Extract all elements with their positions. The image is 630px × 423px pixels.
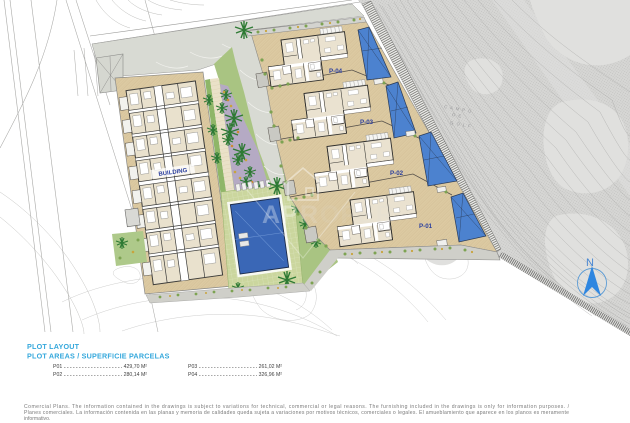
svg-text:P-02: P-02 (390, 170, 404, 177)
svg-text:P04: P04 (188, 372, 197, 378)
svg-text:P03: P03 (188, 364, 197, 370)
svg-text:PLOT AREAS / SUPERFICIE PARCEL: PLOT AREAS / SUPERFICIE PARCELAS (27, 352, 170, 361)
svg-text:P-04: P-04 (329, 68, 343, 75)
svg-text:Planes comerciales. La informa: Planes comerciales. La información conte… (24, 410, 569, 416)
svg-text:N: N (586, 257, 594, 269)
svg-text:280,14 M²: 280,14 M² (124, 372, 148, 378)
svg-text:informativo.: informativo. (24, 416, 50, 422)
svg-text:R: R (300, 201, 319, 229)
svg-text:P02: P02 (53, 372, 62, 378)
svg-text:PLOT LAYOUT: PLOT LAYOUT (27, 342, 80, 351)
svg-text:P-03: P-03 (360, 119, 374, 126)
svg-text:AP: AP (262, 201, 299, 229)
svg-text:OPER: OPER (320, 201, 395, 229)
svg-text:429,70 M²: 429,70 M² (124, 364, 148, 370)
svg-text:P01: P01 (53, 364, 62, 370)
svg-text:P-01: P-01 (419, 223, 433, 230)
svg-text:326,96 M²: 326,96 M² (259, 372, 283, 378)
svg-text:261,02 M²: 261,02 M² (259, 364, 283, 370)
